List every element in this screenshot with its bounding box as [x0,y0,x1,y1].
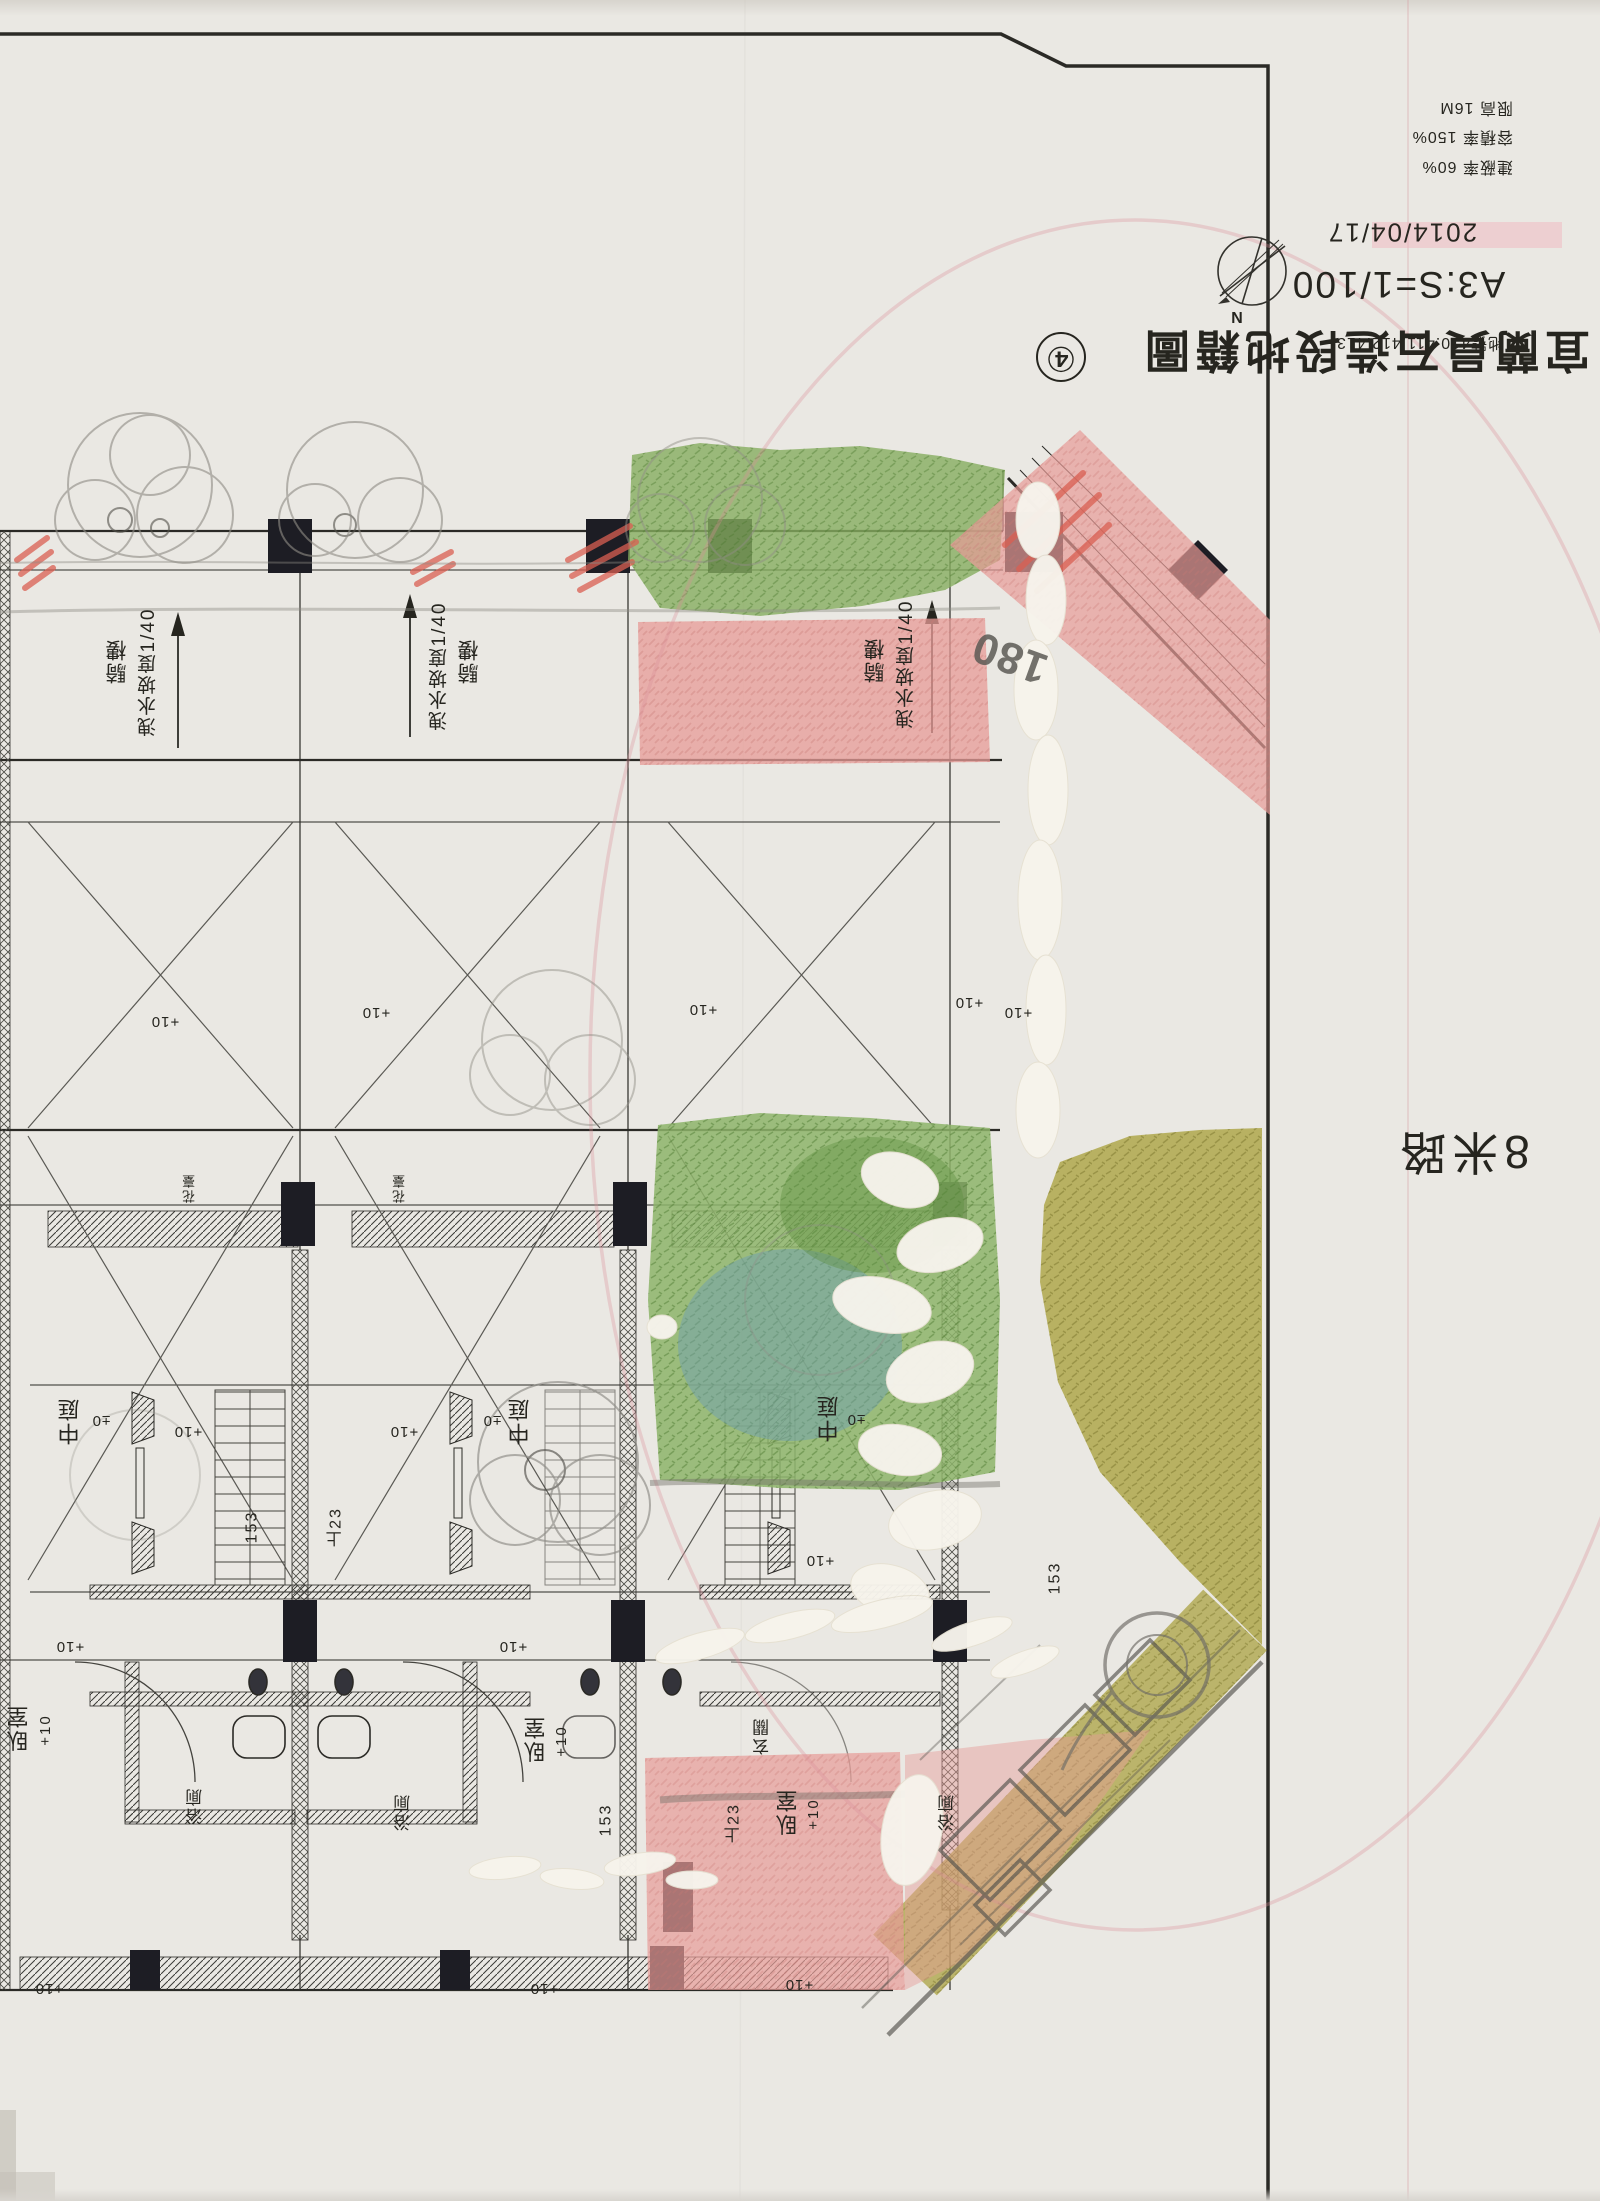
plan-label: ±0 [483,1412,502,1428]
plan-label: 花臺 [393,1173,407,1203]
drawing-sheet: 建蔽率 60%容積率 150%限高 16M 2014/04/17 A3:S=1/… [0,0,1600,2201]
plan-label: 洩水坡度1/40 [430,602,450,731]
plan-label: +10 [554,1725,570,1756]
plan-label: +10 [955,994,983,1010]
date-label: 2014/04/17 [1327,217,1477,248]
plan-label: +10 [530,1980,558,1996]
plan-label: +10 [35,1980,63,1996]
plan-label: 中庭 [817,1394,840,1442]
plan-label: +10 [1004,1004,1032,1020]
plan-label: 153 [599,1804,616,1837]
north-label: N [1231,307,1243,325]
plan-label: +10 [806,1552,834,1568]
plan-label: +10 [499,1638,527,1654]
regulation-line: 容積率 150% [1388,122,1513,152]
plan-label: 玄關 [754,1717,772,1755]
plan-label: 153 [1048,1562,1065,1595]
plan-label: +10 [785,1976,813,1992]
sheet-title: 宜蘭員石造段地籍圖 [1120,322,1590,387]
plan-label: +10 [56,1638,84,1654]
plan-label: 浴廁 [395,1793,413,1831]
plan-label: 中庭 [508,1397,531,1445]
plan-label: ±0 [847,1411,866,1427]
plan-label: 騎樓 [107,638,129,684]
north-compass [1218,237,1286,305]
plan-label: 洩水坡度1/40 [139,608,159,737]
plan-label: 臥室 [524,1715,547,1763]
plan-label: 騎樓 [459,638,481,684]
plan-label: +10 [174,1423,202,1439]
plan-label: 中庭 [58,1397,81,1445]
plan-label: 上23 [727,1803,744,1843]
regulation-line: 限高 16M [1388,92,1513,122]
plan-label: 浴廁 [187,1787,205,1825]
plan-label: +10 [689,1001,717,1017]
plan-label: +10 [38,1714,54,1745]
plan-label: +10 [390,1423,418,1439]
plan-label: 花臺 [183,1173,197,1203]
plan-label: 洩水坡度1/40 [897,600,917,729]
regulations: 建蔽率 60%容積率 150%限高 16M [1388,92,1513,181]
plan-label: 上23 [329,1507,346,1547]
plan-label: ±0 [92,1412,111,1428]
plan-label: 臥室 [7,1704,30,1752]
plan-label: 浴廁 [939,1793,957,1831]
road-label: 8米路 [1394,1122,1530,1188]
regulation-line: 建蔽率 60% [1388,151,1513,181]
sheet-number-badge: ④ [1036,332,1086,382]
plan-label: +10 [362,1004,390,1020]
plan-label: +10 [806,1798,822,1829]
plan-label: 騎樓 [865,637,887,683]
scale-label: A3:S=1/100 [1291,263,1505,305]
plan-label: +10 [151,1013,179,1029]
plan-label: 153 [245,1511,262,1544]
plan-label: 臥室 [776,1788,799,1836]
